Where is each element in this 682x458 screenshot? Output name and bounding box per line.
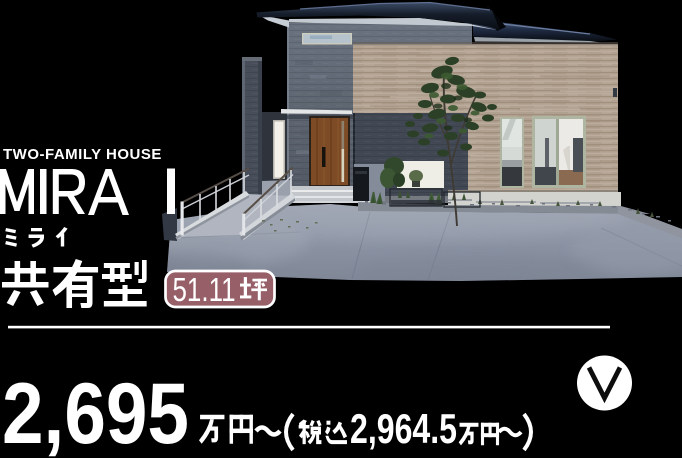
svg-text:TWO-FAMILY HOUSE: TWO-FAMILY HOUSE (3, 146, 162, 163)
svg-text:2,964.5: 2,964.5 (350, 405, 457, 452)
svg-text:2,695: 2,695 (2, 366, 189, 458)
svg-text:51.11: 51.11 (173, 271, 236, 308)
